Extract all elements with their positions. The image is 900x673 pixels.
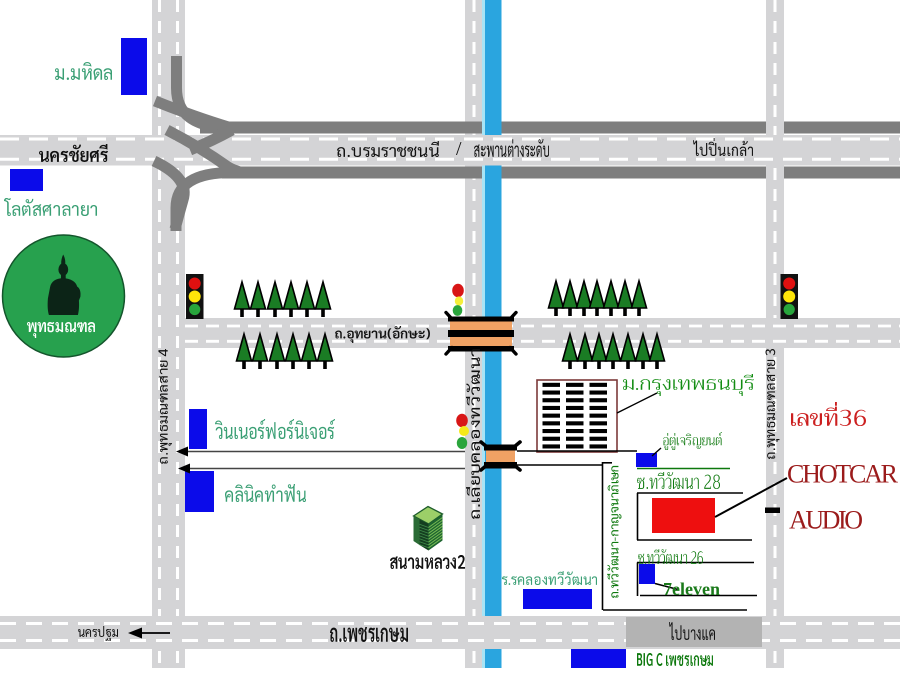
svg-text:CHOTCAR: CHOTCAR xyxy=(787,460,899,489)
svg-text:7eleven: 7eleven xyxy=(663,579,720,599)
svg-text:AUDIO: AUDIO xyxy=(789,506,863,535)
